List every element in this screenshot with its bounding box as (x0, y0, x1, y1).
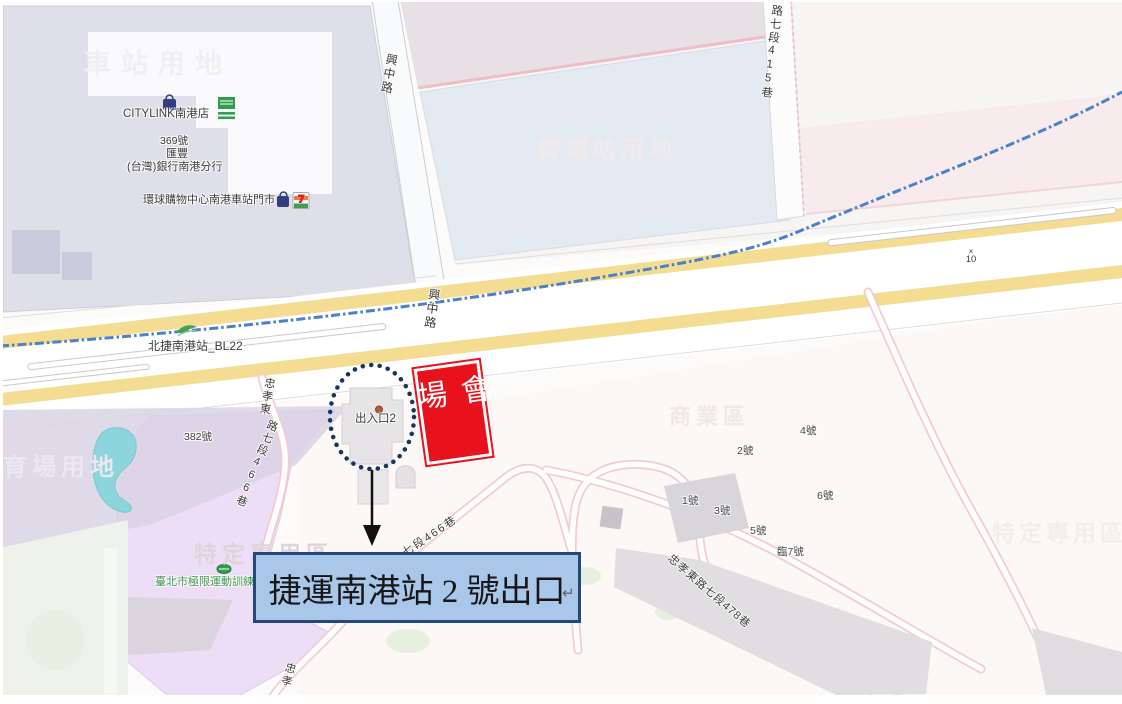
house-number-1: 1號 (682, 495, 698, 507)
seven-eleven-icon (293, 193, 309, 209)
poi-bank-number: 369號 (160, 135, 188, 147)
exit-callout-label: 捷運南港站 2 號出口 (269, 564, 566, 612)
house-number-382: 382號 (184, 431, 212, 443)
map-screenshot: 車站用地 CITYLINK南港店 369號 匯豐 (台灣)銀行南港分行 環球購物… (0, 0, 1122, 704)
zone-stadium-land: 育場用地 (3, 447, 119, 482)
poi-global-mall: 環球購物中心南港車站門市 (143, 194, 275, 207)
poi-extreme-sports: 臺北市極限運動訓練 (155, 576, 254, 589)
exit-callout-box: 捷運南港站 2 號出口 (253, 552, 581, 623)
metro-station-label: 北捷南港站_BL22 (148, 340, 243, 354)
poi-citylink: CITYLINK南港店 (123, 108, 209, 121)
poi-exit-2: 出入口2 (355, 413, 396, 426)
venue-annotation-box: 會場 (411, 358, 494, 468)
poi-bank-name-2: (台灣)銀行南港分行 (127, 161, 222, 174)
venue-label: 會場 (404, 371, 502, 463)
poi-bank-name-1: 匯豐 (166, 148, 188, 161)
venue-inner-fill: 會場 (417, 363, 489, 461)
road-marker-value: 10 (960, 255, 982, 264)
house-number-2: 2號 (737, 445, 753, 457)
house-number-3: 3號 (714, 505, 730, 517)
road-marker-x10: × 10 (960, 248, 982, 264)
zone-commercial: 商業區 (669, 399, 750, 431)
house-number-7: 臨7號 (777, 546, 804, 558)
house-number-5: 5號 (750, 525, 766, 537)
zone-special-right: 特定專用區 (992, 514, 1122, 548)
zone-station-land: 車站用地 (84, 42, 232, 81)
house-number-6: 6號 (817, 490, 833, 502)
zone-transfer-land: 轉運站用地 (537, 130, 677, 164)
house-number-4: 4號 (800, 425, 816, 437)
return-mark: ↵ (562, 584, 575, 602)
exit-poi-dot (376, 406, 383, 413)
